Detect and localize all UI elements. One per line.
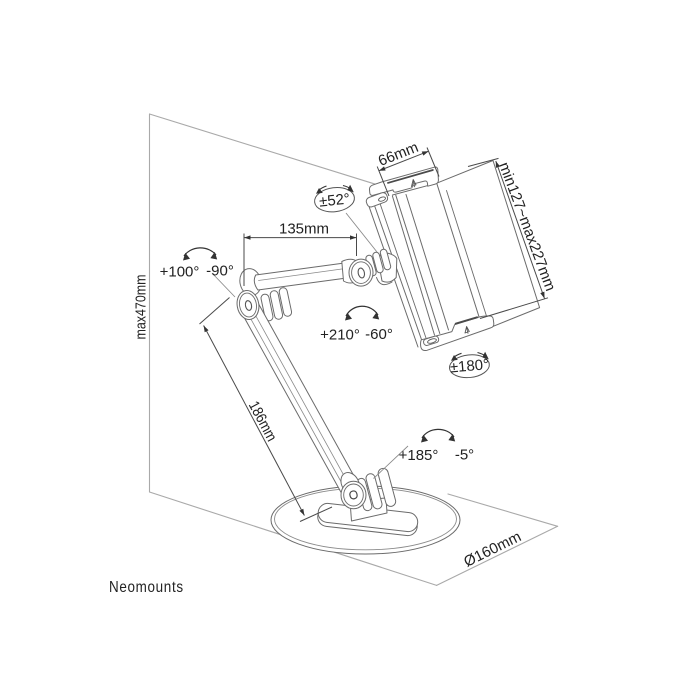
- svg-text:+210°: +210°: [320, 327, 360, 344]
- svg-text:-60°: -60°: [365, 326, 393, 343]
- svg-text:±52°: ±52°: [318, 190, 351, 210]
- svg-text:±180°: ±180°: [449, 356, 490, 376]
- svg-text:max470mm: max470mm: [132, 275, 148, 340]
- svg-text:-90°: -90°: [206, 263, 234, 280]
- svg-text:135mm: 135mm: [279, 221, 329, 238]
- svg-text:+185°: +185°: [399, 447, 439, 464]
- svg-text:+100°: +100°: [160, 264, 200, 281]
- svg-text:Neomounts: Neomounts: [109, 579, 184, 596]
- svg-text:-5°: -5°: [455, 447, 474, 464]
